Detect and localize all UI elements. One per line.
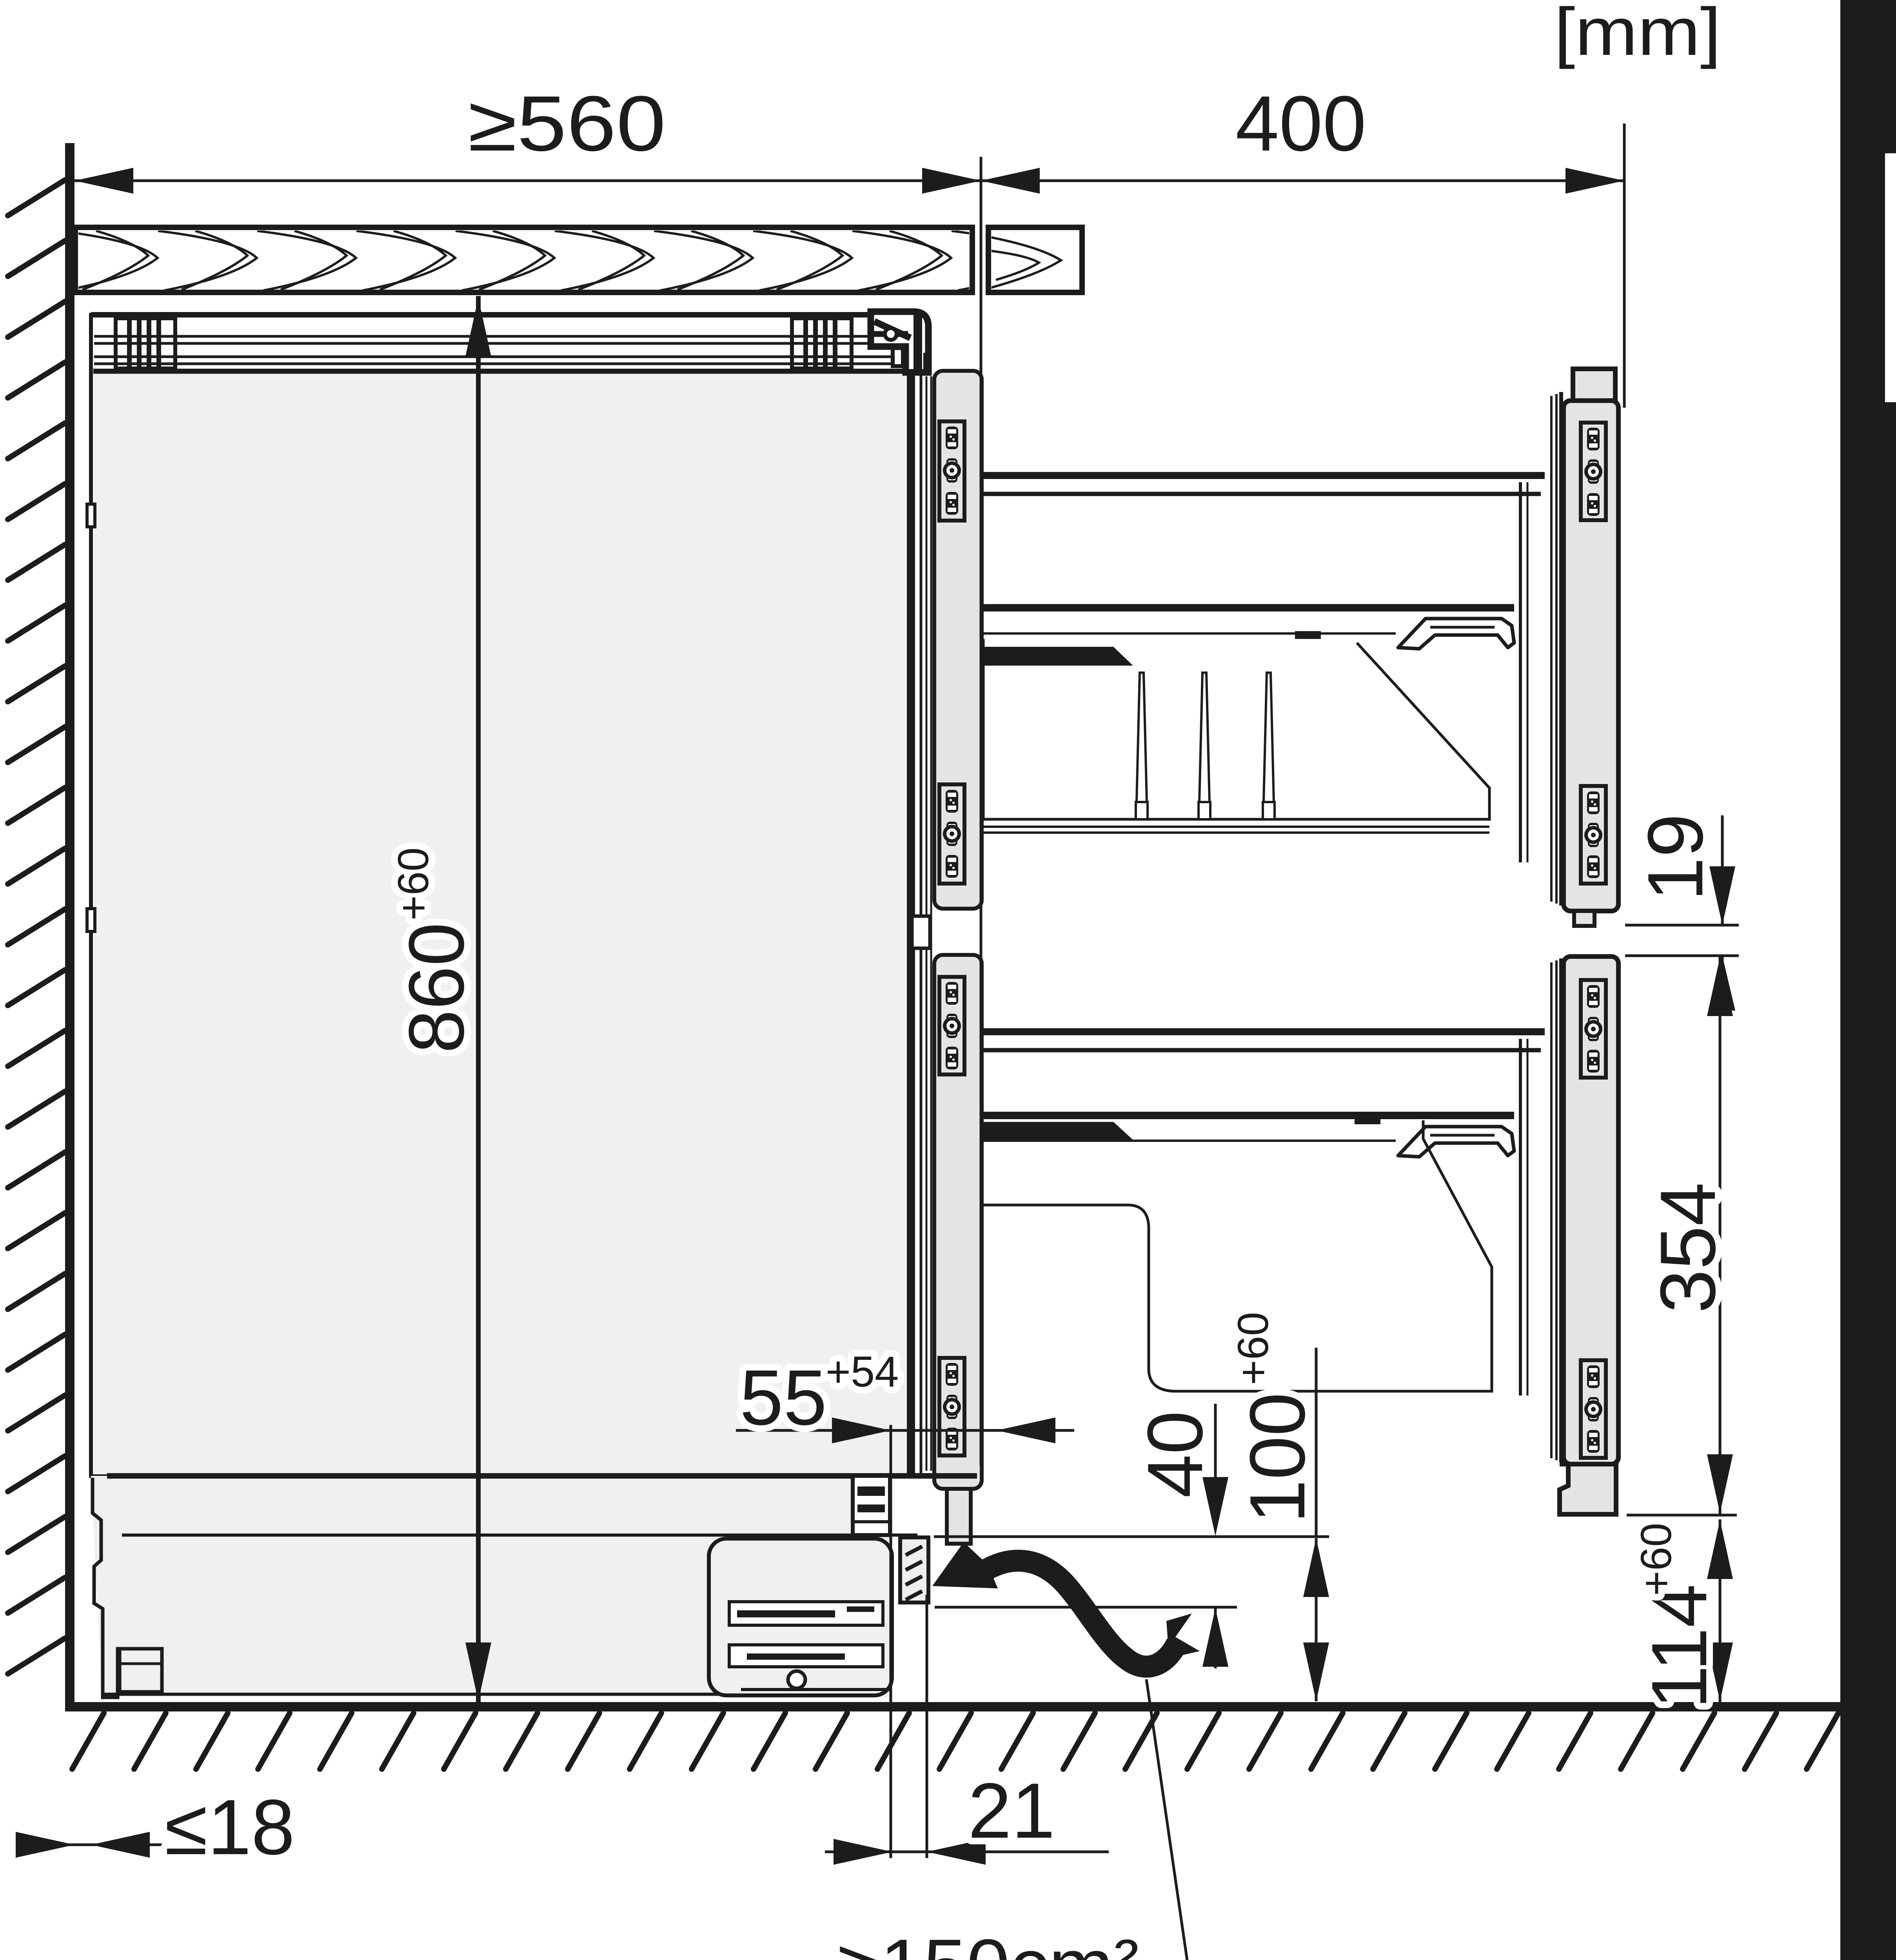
svg-text:40: 40 bbox=[1131, 1411, 1219, 1498]
svg-text:+60: +60 bbox=[389, 848, 438, 921]
svg-text:100: 100 bbox=[1234, 1392, 1321, 1523]
svg-text:354: 354 bbox=[1644, 1182, 1732, 1313]
svg-text:400: 400 bbox=[1235, 80, 1366, 167]
svg-text:≥560: ≥560 bbox=[468, 80, 666, 167]
svg-text:≥150cm²: ≥150cm² bbox=[837, 1924, 1139, 1960]
svg-text:≤18: ≤18 bbox=[165, 1784, 295, 1871]
svg-text:+60: +60 bbox=[1632, 1523, 1680, 1596]
svg-text:[mm]: [mm] bbox=[1554, 0, 1721, 69]
svg-text:+60: +60 bbox=[1229, 1312, 1277, 1385]
svg-text:+54: +54 bbox=[826, 1348, 899, 1396]
svg-text:19: 19 bbox=[1632, 814, 1719, 901]
svg-text:55: 55 bbox=[740, 1354, 827, 1441]
svg-text:114: 114 bbox=[1636, 1584, 1723, 1709]
svg-text:860: 860 bbox=[393, 922, 480, 1053]
svg-text:21: 21 bbox=[968, 1767, 1055, 1855]
